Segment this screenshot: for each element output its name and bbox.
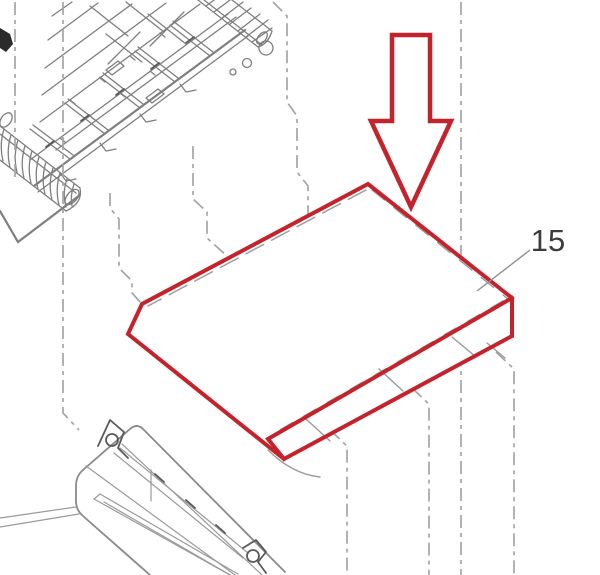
bottom-panel-drawing [0, 420, 285, 575]
part-15-callout: 15 [477, 223, 565, 291]
exploded-view-diagram: 15 [0, 0, 600, 575]
chassis-corner-edge [0, 195, 80, 242]
guide-staircase-left [110, 193, 141, 303]
down-arrow-icon [371, 35, 451, 207]
part-15-label: 15 [531, 223, 565, 258]
guide-staircase-mid [193, 146, 228, 257]
gear-blob [0, 28, 13, 52]
belt-struts [90, 2, 186, 64]
feed-assembly-drawing [0, 0, 273, 242]
guide-drop-left [330, 430, 347, 575]
part-15-leader-line [477, 250, 530, 291]
guide-drop-mid [412, 388, 429, 575]
cross-members [30, 21, 213, 159]
panel-strip-pad [94, 494, 238, 575]
tray-cover-part [128, 184, 512, 477]
guide-line-to-panel [63, 2, 79, 430]
guide-drop-right [496, 352, 514, 575]
panel-fold-line [122, 444, 262, 575]
right-tread-roller [198, 0, 272, 47]
diagram-canvas: 15 [0, 0, 600, 575]
tray-cover-face [128, 184, 512, 459]
guide-staircase-right [273, 2, 308, 215]
